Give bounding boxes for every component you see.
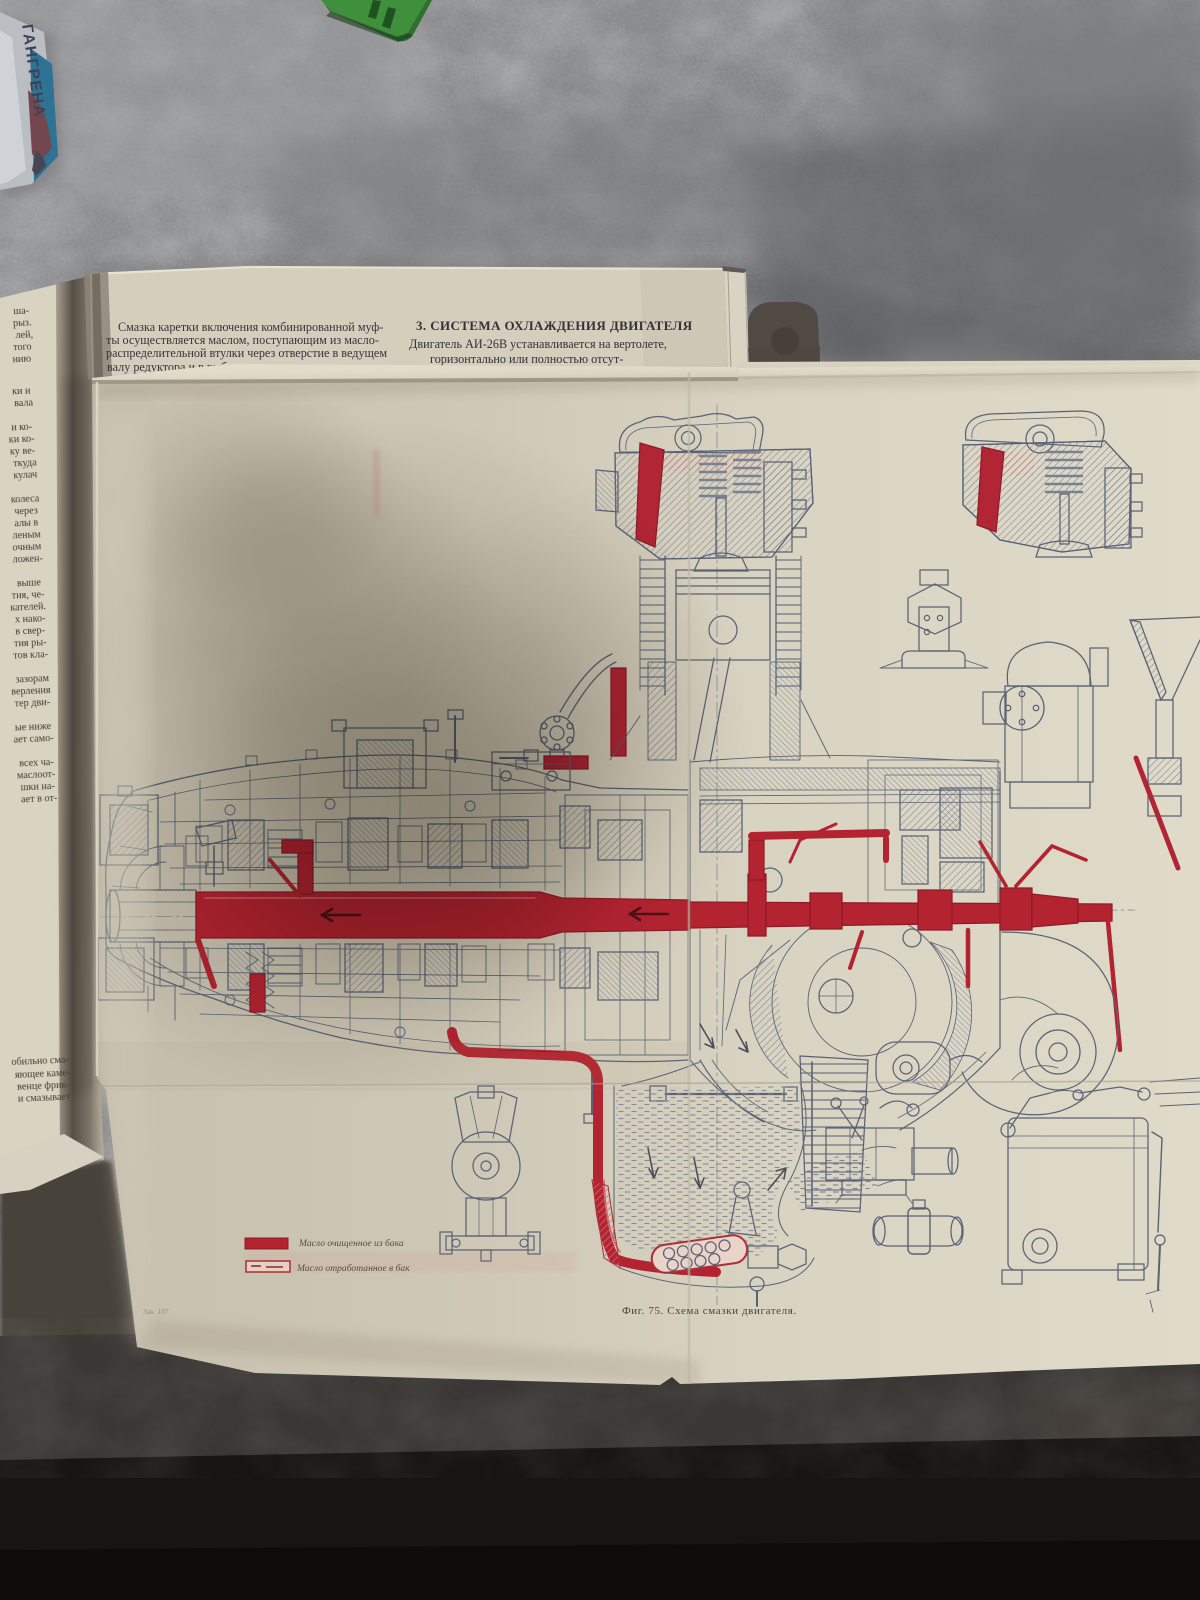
- svg-text:вала: вала: [14, 397, 34, 409]
- svg-text:ткуда: ткуда: [13, 457, 37, 469]
- svg-text:алы в: алы в: [14, 517, 39, 529]
- svg-text:распределительной втулки через: распределительной втулки через отверстие…: [106, 346, 387, 360]
- svg-text:лей,: лей,: [15, 329, 33, 341]
- svg-text:кулач: кулач: [13, 469, 37, 481]
- svg-text:ки и: ки и: [12, 386, 31, 398]
- svg-text:кателей.: кателей.: [10, 601, 46, 614]
- svg-text:Двигатель АИ-26В устанавлив: Двигатель АИ-26В устанавливается на верт…: [409, 337, 667, 351]
- svg-text:венце фрик-: венце фрик-: [17, 1079, 71, 1092]
- svg-text:Смазка каретки включения комби: Смазка каретки включения комбинированной…: [118, 320, 383, 334]
- svg-text:тия ры-: тия ры-: [14, 637, 48, 649]
- svg-text:через: через: [14, 505, 38, 517]
- svg-text:маслоот-: маслоот-: [17, 769, 56, 782]
- svg-text:всех ча-: всех ча-: [19, 757, 55, 770]
- svg-text:ки ко-: ки ко-: [9, 433, 36, 445]
- svg-text:ложен-: ложен-: [12, 553, 43, 565]
- svg-text:того: того: [13, 341, 32, 353]
- svg-text:зазорам: зазорам: [15, 673, 50, 685]
- svg-text:тов кла-: тов кла-: [13, 649, 49, 662]
- svg-text:и смазывает: и смазывает: [18, 1091, 71, 1104]
- svg-text:тия, че-: тия, че-: [11, 589, 45, 601]
- svg-text:леным: леным: [12, 529, 41, 541]
- svg-text:Масло очищенное из бака: Масло очищенное из бака: [298, 1238, 404, 1249]
- svg-text:ые ниже: ые ниже: [15, 721, 52, 734]
- svg-text:ает само-: ает само-: [13, 733, 54, 746]
- svg-text:х нако-: х нако-: [15, 613, 47, 625]
- svg-text:рыз.: рыз.: [13, 317, 32, 329]
- svg-text:нию: нию: [12, 353, 31, 365]
- svg-text:в свер-: в свер-: [15, 625, 46, 637]
- svg-text:Масло отработанное в бак: Масло отработанное в бак: [296, 1263, 410, 1274]
- svg-text:горизонтально или полностью: горизонтально или полностью отсут-: [430, 352, 623, 366]
- svg-text:ку ве-: ку ве-: [10, 445, 36, 457]
- svg-text:колеса: колеса: [11, 493, 40, 505]
- svg-text:тер дви-: тер дви-: [14, 697, 51, 710]
- svg-text:Зак. 107: Зак. 107: [143, 1307, 169, 1316]
- svg-text:очным: очным: [12, 541, 42, 553]
- svg-text:и ко-: и ко-: [11, 422, 33, 434]
- svg-text:ша-: ша-: [13, 306, 30, 318]
- svg-text:верления: верления: [11, 685, 51, 698]
- svg-text:выше: выше: [17, 577, 42, 589]
- svg-text:Фиг. 75. Схема смазки двига: Фиг. 75. Схема смазки двигателя.: [622, 1305, 797, 1317]
- svg-text:ты осуществляется маслом, пост: ты осуществляется маслом, поступающим из…: [106, 333, 379, 347]
- svg-text:шки на-: шки на-: [20, 781, 55, 794]
- svg-text:3. СИСТЕМА ОХЛАЖДЕНИЯ ДВИГАТЕЛ: 3. СИСТЕМА ОХЛАЖДЕНИЯ ДВИГАТЕЛЯ: [416, 318, 693, 333]
- svg-text:ает в от-: ает в от-: [21, 793, 58, 806]
